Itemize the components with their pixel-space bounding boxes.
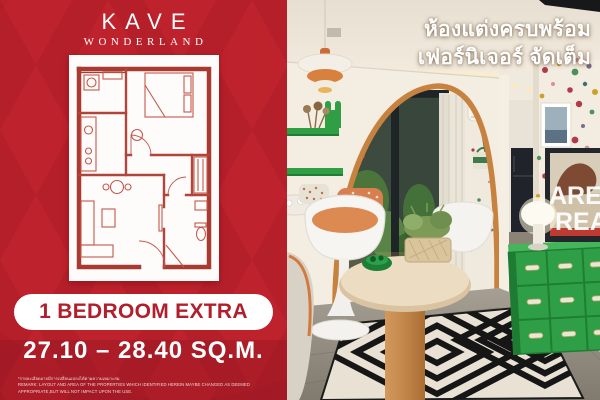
plan-type-badge: 1 BEDROOM EXTRA [14,294,273,330]
interior-photo: ARE REA [287,0,600,400]
headline: ห้องแต่งครบพร้อม เฟอร์นิเจอร์ จัดเต็ม [418,16,591,72]
tv-text-line1: ARE [549,182,600,210]
brand-logo-wonderland: WONDERLAND [0,37,287,48]
disclaimer-english: REMARK: LAYOUT AND AREA OF THE PROPERTIE… [18,382,281,395]
floor-plan-drawing [69,55,219,281]
headline-line2: เฟอร์นิเจอร์ จัดเต็ม [418,44,591,72]
green-sideboard [508,239,600,354]
picture-frame [541,103,571,147]
disclaimer: *รายละเอียดอาจมีการเปลี่ยนแปลงได้ตามความ… [18,376,281,395]
brand-logo: KAVE WONDERLAND [0,0,287,48]
kave-wonderland-ad: KAVE WONDERLAND [0,0,600,400]
green-glass-bowl [362,255,392,271]
info-panel: KAVE WONDERLAND [0,0,287,400]
plan-area-range: 27.10 – 28.40 SQ.M. [0,337,287,365]
brand-logo-kave: KAVE [0,11,287,33]
headline-line1: ห้องแต่งครบพร้อม [418,16,591,44]
tv-text-line2: REA [555,208,600,236]
tv: ARE REA [545,148,600,242]
floor-plan-card [69,55,219,281]
